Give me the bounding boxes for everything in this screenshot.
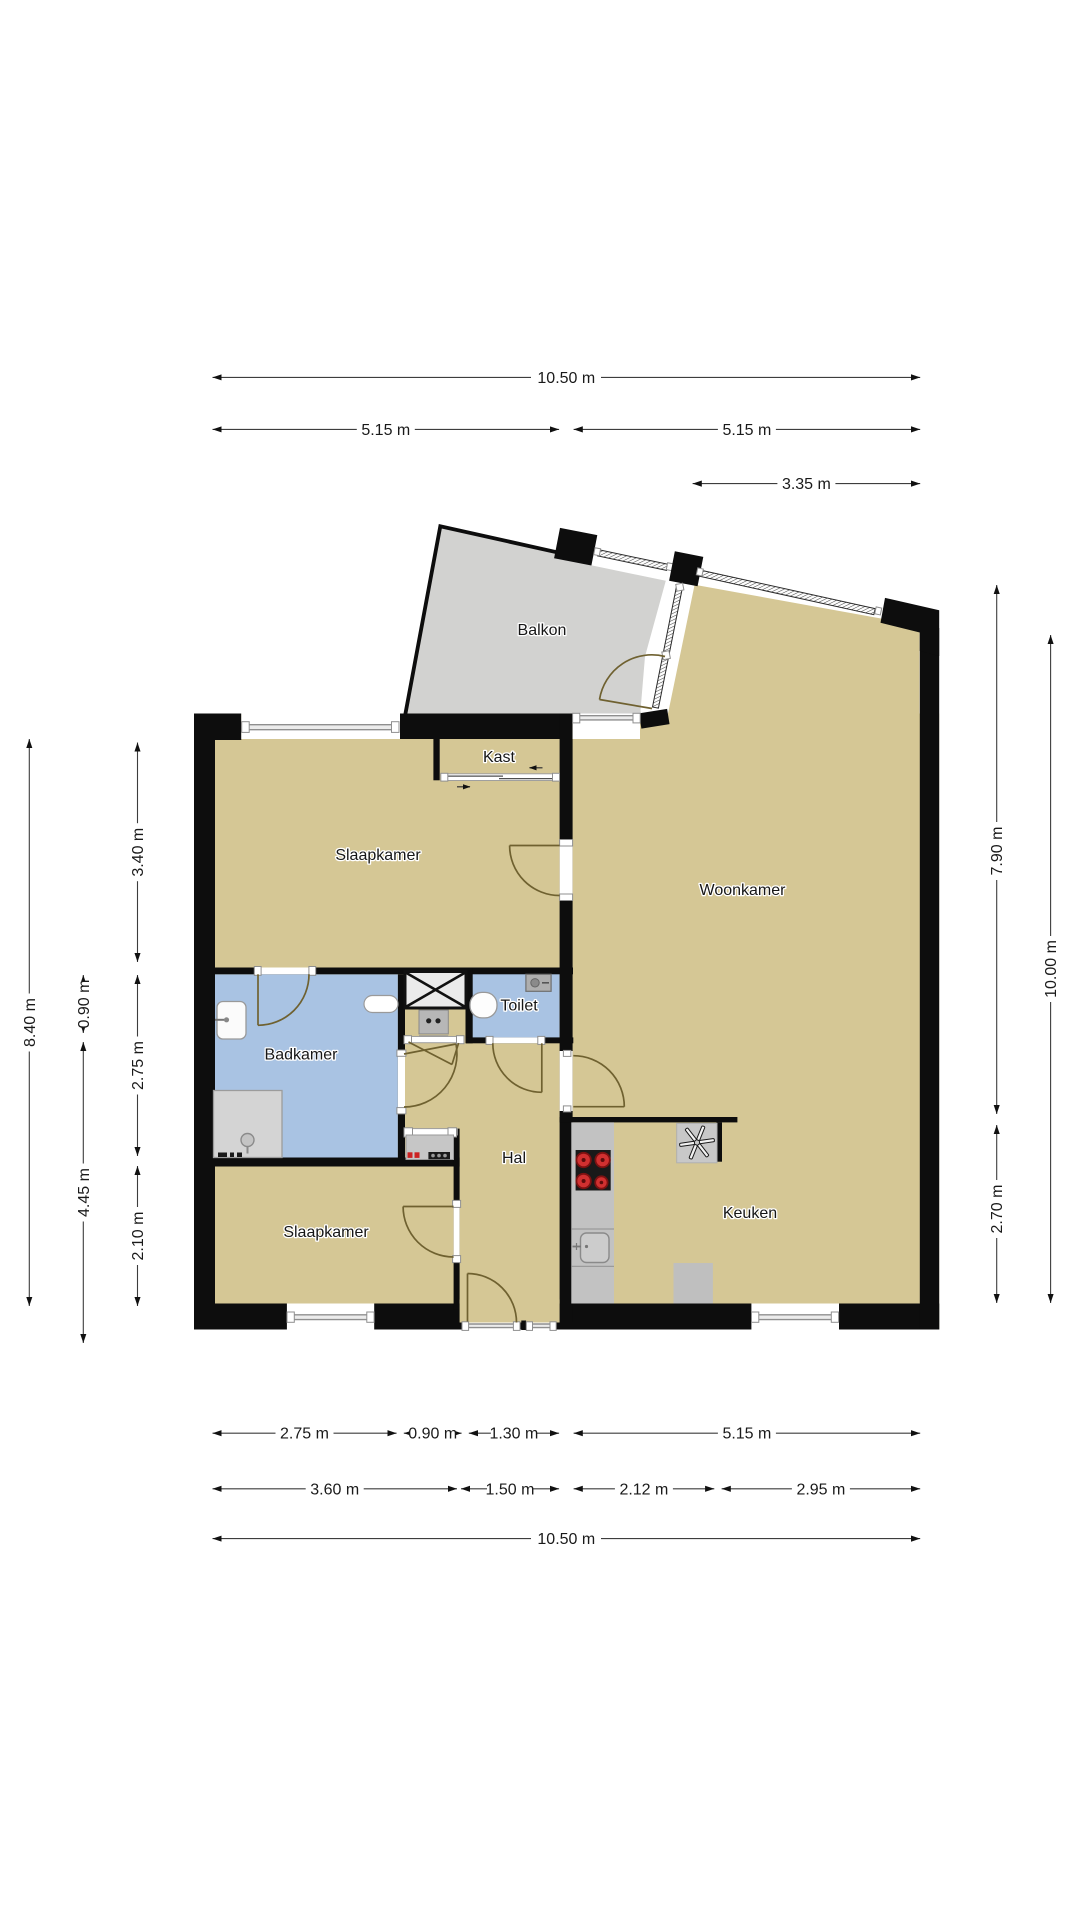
svg-text:1.30 m: 1.30 m bbox=[489, 1426, 538, 1443]
svg-text:Badkamer: Badkamer bbox=[265, 1047, 339, 1064]
svg-text:2.95 m: 2.95 m bbox=[796, 1481, 845, 1498]
svg-text:4.45 m: 4.45 m bbox=[76, 1168, 93, 1217]
svg-text:10.50 m: 10.50 m bbox=[537, 1531, 595, 1548]
svg-text:Slaapkamer: Slaapkamer bbox=[283, 1224, 369, 1241]
svg-text:3.40 m: 3.40 m bbox=[130, 828, 147, 877]
svg-text:1.50 m: 1.50 m bbox=[486, 1481, 535, 1498]
svg-text:0.90 m: 0.90 m bbox=[408, 1426, 457, 1443]
svg-text:7.90 m: 7.90 m bbox=[989, 827, 1006, 876]
svg-text:0.90 m: 0.90 m bbox=[76, 980, 93, 1029]
svg-text:Toilet: Toilet bbox=[500, 998, 538, 1015]
svg-text:2.75 m: 2.75 m bbox=[130, 1041, 147, 1090]
svg-text:Hal: Hal bbox=[502, 1150, 526, 1167]
svg-text:Balkon: Balkon bbox=[518, 622, 567, 639]
svg-text:10.00 m: 10.00 m bbox=[1043, 940, 1060, 998]
svg-text:2.12 m: 2.12 m bbox=[619, 1481, 668, 1498]
svg-text:Kast: Kast bbox=[483, 749, 516, 766]
svg-text:5.15 m: 5.15 m bbox=[722, 1426, 771, 1443]
svg-text:5.15 m: 5.15 m bbox=[722, 422, 771, 439]
svg-text:3.35 m: 3.35 m bbox=[782, 476, 831, 493]
svg-text:8.40 m: 8.40 m bbox=[22, 998, 39, 1047]
svg-text:10.50 m: 10.50 m bbox=[537, 370, 595, 387]
svg-text:2.70 m: 2.70 m bbox=[989, 1185, 1006, 1234]
svg-text:Keuken: Keuken bbox=[723, 1205, 777, 1222]
svg-text:5.15 m: 5.15 m bbox=[361, 422, 410, 439]
svg-text:2.75 m: 2.75 m bbox=[280, 1426, 329, 1443]
svg-text:3.60 m: 3.60 m bbox=[310, 1481, 359, 1498]
svg-text:Slaapkamer: Slaapkamer bbox=[335, 847, 421, 864]
svg-text:2.10 m: 2.10 m bbox=[130, 1212, 147, 1261]
svg-text:Woonkamer: Woonkamer bbox=[700, 882, 787, 899]
